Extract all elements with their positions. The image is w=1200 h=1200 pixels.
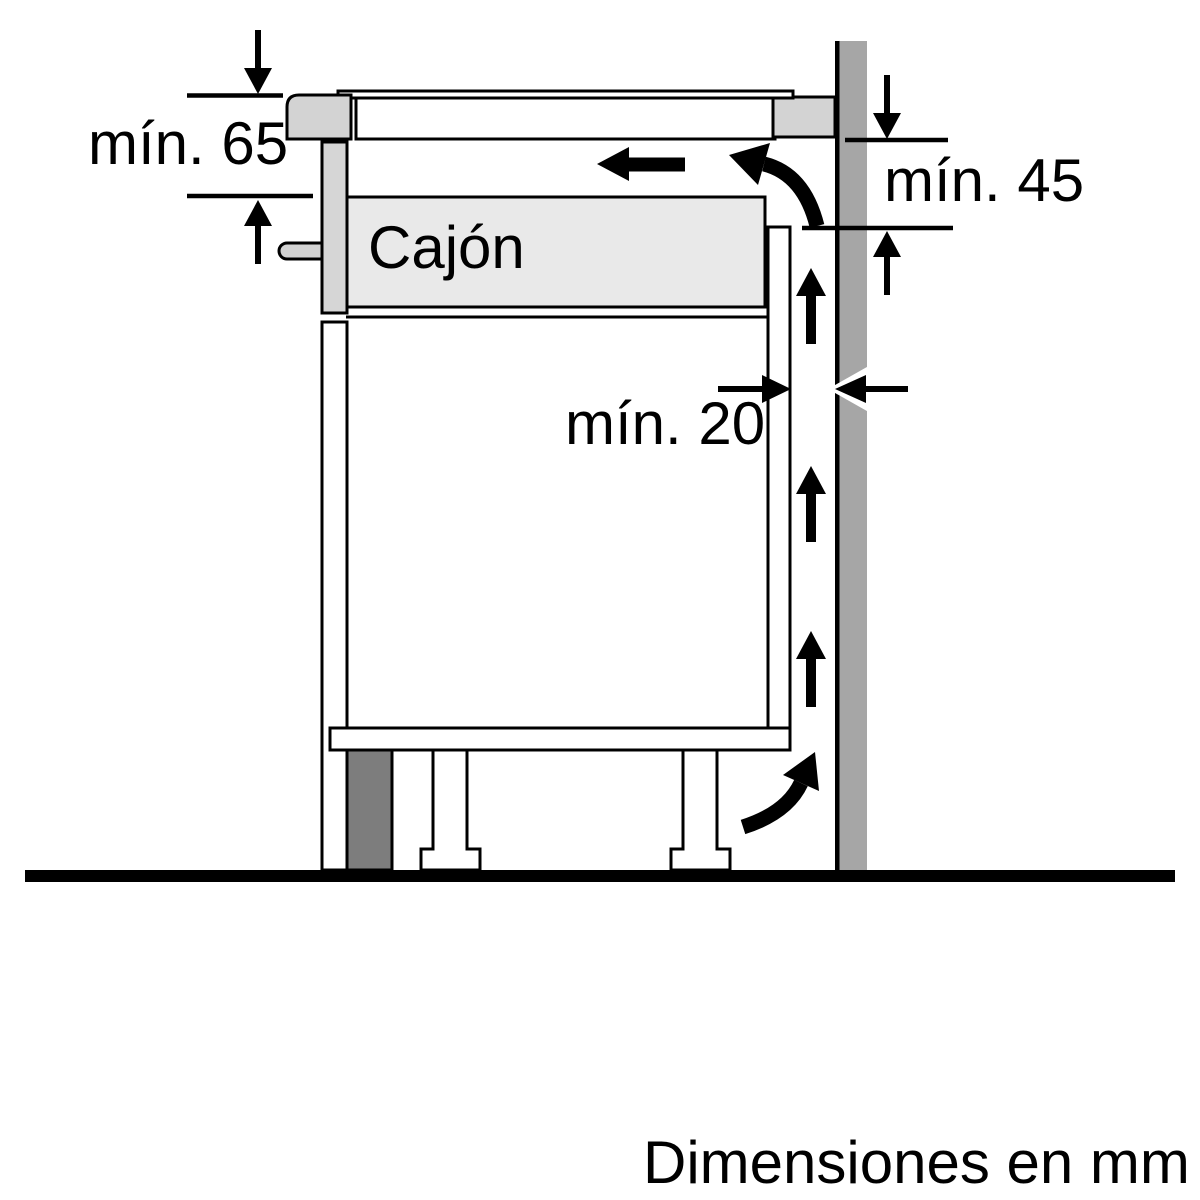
cabinet-bottom-panel — [330, 728, 790, 750]
hob-front-trim — [287, 95, 351, 139]
dimension-min45-label: mín. 45 — [884, 147, 1084, 214]
hob-glass-top — [338, 91, 793, 98]
airflow-curved-arrow-bottom-icon — [743, 752, 819, 827]
airflow-left-arrow-icon — [597, 147, 685, 181]
dimension-min65: mín. 65 — [88, 30, 313, 264]
floor-line — [25, 870, 1175, 882]
drawer-front-panel — [322, 142, 347, 313]
airflow-up-arrow-3-icon — [796, 631, 826, 707]
up-arrow-icon — [244, 200, 272, 264]
wall — [835, 41, 867, 870]
drawer-label: Cajón — [368, 214, 525, 281]
down-arrow-icon — [873, 75, 901, 139]
airflow-up-arrow-2-icon — [796, 466, 826, 542]
down-arrow-icon — [244, 30, 272, 94]
worktop-section-right — [773, 97, 835, 137]
up-arrow-icon — [873, 231, 901, 295]
dimension-min20-label: mín. 20 — [565, 390, 765, 457]
cabinet-back-deflector-panel — [768, 227, 790, 728]
hob-body — [356, 97, 775, 139]
cabinet-leg-left — [421, 750, 480, 870]
footer-units-note: Dimensiones en mm — [643, 1129, 1190, 1196]
airflow-up-arrow-1-icon — [796, 268, 826, 344]
plinth-block — [347, 750, 392, 870]
wall-edge-line — [835, 41, 840, 870]
installation-diagram-page: mín. 65 mín. 45 mín. 20 Cajón Dimensione… — [0, 0, 1200, 1200]
cabinet-leg-right — [671, 750, 730, 870]
dimension-min65-label: mín. 65 — [88, 110, 288, 177]
hob-installation-diagram: mín. 65 mín. 45 mín. 20 Cajón Dimensione… — [0, 0, 1200, 1200]
cabinet-door-panel — [322, 322, 347, 870]
